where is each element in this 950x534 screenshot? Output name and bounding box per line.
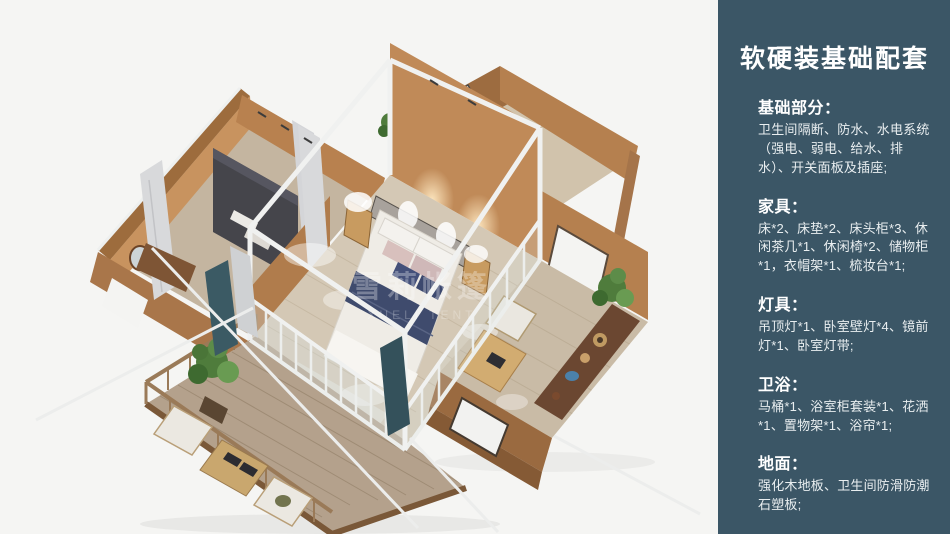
plate — [580, 353, 590, 363]
section-basic-heading: 基础部分： — [758, 94, 936, 118]
lamp-glow — [464, 245, 488, 263]
section-flooring: 地面： 强化木地板、卫生间防滑防潮石塑板; — [758, 450, 936, 515]
lamp-glow — [344, 192, 372, 212]
slide: 雪莉帐篷 XUELI TENT 软硬装基础配套 基础部分： 卫生间隔断、防水、水… — [0, 0, 950, 534]
panel-title: 软硬装基础配套 — [740, 44, 936, 74]
section-lighting-body: 吊顶灯*1、卧室壁灯*4、镜前灯*1、卧室灯带; — [758, 318, 936, 356]
section-lighting-heading: 灯具： — [758, 291, 936, 315]
section-bathroom: 卫浴： 马桶*1、浴室柜套装*1、花洒*1、置物架*1、浴帘*1; — [758, 371, 936, 436]
info-panel: 软硬装基础配套 基础部分： 卫生间隔断、防水、水电系统（强电、弱电、给水、排水）… — [718, 0, 950, 534]
pot — [552, 392, 560, 400]
blue-bowl — [565, 371, 579, 381]
section-flooring-body: 强化木地板、卫生间防滑防潮石塑板; — [758, 477, 936, 515]
section-basic: 基础部分： 卫生间隔断、防水、水电系统（强电、弱电、给水、排水）、开关面板及插座… — [758, 94, 936, 178]
isometric-tent-house — [0, 0, 718, 534]
section-furniture-body: 床*2、床垫*2、床头柜*3、休闲茶几*1、休闲椅*2、储物柜*1，衣帽架*1、… — [758, 220, 936, 277]
section-lighting: 灯具： 吊顶灯*1、卧室壁灯*4、镜前灯*1、卧室灯带; — [758, 291, 936, 356]
section-furniture-heading: 家具： — [758, 193, 936, 217]
section-furniture: 家具： 床*2、床垫*2、床头柜*3、休闲茶几*1、休闲椅*2、储物柜*1，衣帽… — [758, 193, 936, 277]
section-bathroom-heading: 卫浴： — [758, 371, 936, 395]
section-flooring-heading: 地面： — [758, 450, 936, 474]
light-pool — [496, 394, 528, 410]
olive-cushion — [275, 495, 291, 507]
floorplan-render: 雪莉帐篷 XUELI TENT — [0, 0, 718, 534]
section-bathroom-body: 马桶*1、浴室柜套装*1、花洒*1、置物架*1、浴帘*1; — [758, 398, 936, 436]
section-basic-body: 卫生间隔断、防水、水电系统（强电、弱电、给水、排水）、开关面板及插座; — [758, 121, 936, 178]
basket-center — [597, 337, 603, 343]
panel-sections: 基础部分： 卫生间隔断、防水、水电系统（强电、弱电、给水、排水）、开关面板及插座… — [758, 94, 936, 515]
